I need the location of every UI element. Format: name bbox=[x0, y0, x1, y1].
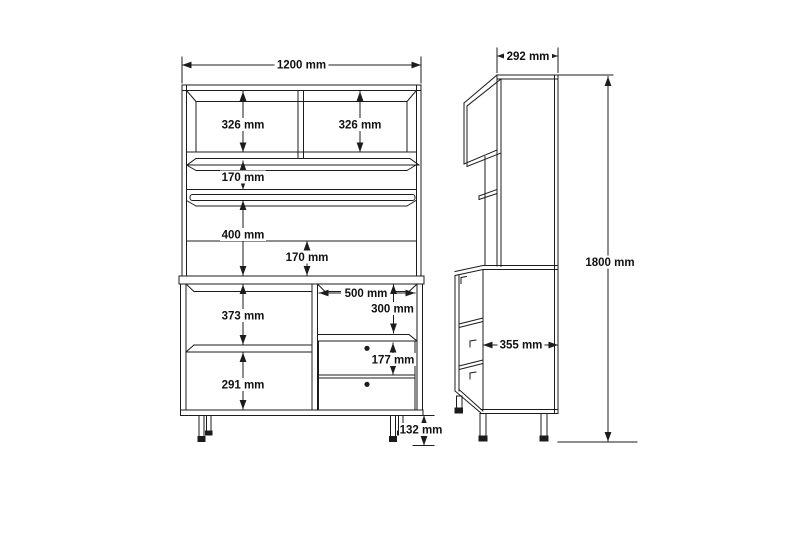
base-right-side-panel bbox=[417, 284, 423, 410]
hutch-left-side-panel bbox=[182, 85, 187, 276]
drawer-knob-upper[interactable] bbox=[364, 346, 369, 351]
leg bbox=[199, 416, 204, 438]
dim-label-niche-height: 300 mm bbox=[371, 304, 414, 316]
base-divider bbox=[312, 284, 318, 410]
technical-drawing-page: 1200 mm 326 mm 326 mm 170 mm bbox=[0, 0, 800, 533]
leg bbox=[391, 416, 396, 438]
dim-label-counter-gap: 170 mm bbox=[286, 252, 329, 264]
side-shelf-edge bbox=[479, 190, 497, 200]
dim-label-top-right: 326 mm bbox=[339, 120, 382, 132]
front-view: 1200 mm 326 mm 326 mm 170 mm bbox=[179, 57, 443, 446]
leg-foot bbox=[205, 431, 213, 436]
dim-label-leg-height: 132 mm bbox=[400, 425, 443, 437]
hutch-top-divider bbox=[298, 91, 304, 159]
leg-foot bbox=[389, 436, 397, 442]
dim-drawer-height: 177 mm bbox=[370, 343, 416, 375]
base-counter-top bbox=[179, 276, 424, 284]
dim-top-right-compartment: 326 mm bbox=[337, 92, 383, 153]
leg-foot bbox=[455, 408, 464, 414]
front-legs bbox=[198, 416, 405, 443]
drawer-knob-lower[interactable] bbox=[364, 382, 369, 387]
dim-label-open-section: 400 mm bbox=[222, 230, 265, 242]
dim-label-base-lower: 291 mm bbox=[222, 380, 265, 392]
dim-upper-depth: 292 mm bbox=[497, 48, 558, 73]
front-hutch bbox=[182, 85, 421, 276]
side-base-cabinet bbox=[455, 266, 559, 442]
dim-label-shelf-section: 170 mm bbox=[222, 172, 265, 184]
hutch-right-side-panel bbox=[417, 85, 422, 276]
dim-label-niche-width: 500 mm bbox=[345, 288, 388, 300]
side-door-handle bbox=[461, 277, 467, 284]
side-drawer-handle-upper bbox=[470, 340, 476, 347]
side-view: 292 mm 355 mm 1800 mm bbox=[455, 48, 638, 442]
leg-foot bbox=[540, 436, 549, 442]
dim-label-drawer-height: 177 mm bbox=[372, 355, 415, 367]
dim-label-top-left: 326 mm bbox=[222, 120, 265, 132]
dim-label-overall-width: 1200 mm bbox=[277, 60, 326, 72]
dim-counter-gap: 170 mm bbox=[284, 241, 330, 276]
dim-base-lower-compartment: 291 mm bbox=[220, 353, 266, 410]
leg bbox=[541, 414, 547, 437]
dim-label-base-upper: 373 mm bbox=[222, 311, 265, 323]
leg bbox=[207, 416, 212, 433]
dim-base-depth: 355 mm bbox=[483, 339, 558, 352]
dim-label-overall-height: 1800 mm bbox=[585, 257, 634, 269]
dim-overall-width: 1200 mm bbox=[182, 57, 421, 83]
leg bbox=[457, 396, 463, 409]
hutch-shelf-2 bbox=[187, 190, 417, 201]
niche-bottom-shelf bbox=[318, 335, 418, 342]
base-bottom-panel bbox=[181, 410, 424, 416]
drawers bbox=[319, 341, 416, 410]
side-drawer-handle-lower bbox=[470, 372, 476, 379]
hutch-top-panel bbox=[182, 85, 421, 91]
leg bbox=[480, 414, 486, 437]
leg-foot bbox=[198, 436, 206, 442]
dim-niche-width: 500 mm bbox=[319, 287, 415, 301]
dim-overall-height: 1800 mm bbox=[558, 77, 637, 443]
base-left-shelf bbox=[186, 345, 312, 352]
hutch-shelf-1 bbox=[187, 159, 419, 166]
dim-leg-height: 132 mm bbox=[399, 416, 443, 446]
dim-top-left-compartment: 326 mm bbox=[220, 92, 266, 153]
base-left-side-panel bbox=[181, 284, 187, 410]
dim-base-upper-compartment: 373 mm bbox=[220, 285, 266, 345]
dim-label-base-depth: 355 mm bbox=[500, 340, 543, 352]
leg-foot bbox=[479, 436, 488, 442]
cabinet-dimension-drawing: 1200 mm 326 mm 326 mm 170 mm bbox=[0, 0, 800, 533]
side-hutch bbox=[464, 75, 613, 414]
dim-open-section: 400 mm bbox=[220, 201, 266, 276]
dim-label-upper-depth: 292 mm bbox=[507, 51, 550, 63]
